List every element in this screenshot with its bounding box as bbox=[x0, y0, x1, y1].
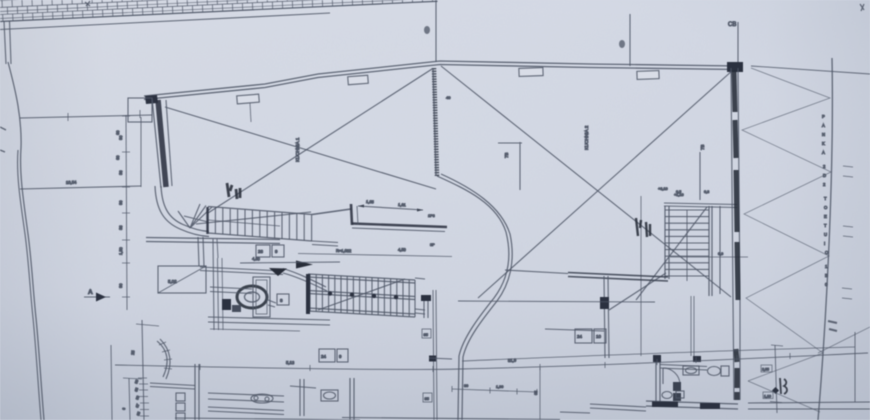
svg-text:KUCHNIA 1: KUCHNIA 1 bbox=[295, 137, 300, 162]
svg-text:6: 6 bbox=[122, 408, 126, 410]
svg-text:E: E bbox=[824, 214, 827, 219]
svg-text:1,50: 1,50 bbox=[118, 246, 123, 255]
svg-text:T: T bbox=[824, 196, 827, 201]
svg-text:40: 40 bbox=[446, 95, 451, 100]
svg-text:10: 10 bbox=[596, 334, 601, 339]
svg-text:0,9: 0,9 bbox=[718, 252, 723, 256]
svg-text:A: A bbox=[822, 123, 825, 128]
svg-text:4,50: 4,50 bbox=[398, 247, 407, 252]
svg-text:8: 8 bbox=[280, 298, 283, 303]
svg-text:1P3: 1P3 bbox=[428, 214, 435, 218]
svg-text:I: I bbox=[824, 241, 825, 246]
svg-text:R=1,052: R=1,052 bbox=[336, 248, 352, 253]
svg-text:+3,10: +3,10 bbox=[658, 187, 668, 191]
svg-text:85: 85 bbox=[424, 332, 429, 337]
svg-text:K: K bbox=[822, 141, 825, 146]
svg-text:1,10: 1,10 bbox=[764, 395, 771, 399]
svg-text:1,61: 1,61 bbox=[398, 202, 407, 207]
svg-text:7B: 7B bbox=[504, 153, 509, 158]
svg-text:T: T bbox=[824, 223, 827, 228]
svg-text:7B: 7B bbox=[700, 145, 705, 150]
svg-text:A: A bbox=[88, 289, 93, 296]
svg-text:N: N bbox=[822, 132, 825, 137]
svg-text:5,13: 5,13 bbox=[286, 360, 295, 365]
svg-text:CB: CB bbox=[728, 22, 736, 28]
svg-text:10,54: 10,54 bbox=[66, 180, 77, 185]
svg-text:05: 05 bbox=[534, 391, 538, 395]
svg-text:B: B bbox=[825, 273, 828, 278]
svg-text:26: 26 bbox=[258, 249, 263, 254]
svg-text:80: 80 bbox=[464, 384, 468, 388]
svg-text:5,02: 5,02 bbox=[168, 279, 177, 284]
svg-text:1,90: 1,90 bbox=[496, 385, 503, 389]
svg-text:KUCHNIA 2: KUCHNIA 2 bbox=[584, 125, 589, 150]
svg-text:A: A bbox=[822, 150, 825, 155]
svg-text:1,05: 1,05 bbox=[366, 199, 375, 204]
svg-text:3P: 3P bbox=[430, 243, 435, 247]
svg-text:24: 24 bbox=[577, 334, 582, 339]
svg-text:85: 85 bbox=[425, 396, 430, 401]
svg-text:P: P bbox=[822, 114, 825, 119]
svg-text:2,85: 2,85 bbox=[762, 368, 769, 372]
svg-text:51,9: 51,9 bbox=[508, 358, 517, 363]
svg-text:0,8: 0,8 bbox=[704, 190, 709, 194]
svg-text:24: 24 bbox=[321, 354, 326, 359]
svg-text:U: U bbox=[824, 232, 827, 237]
svg-text:0,5: 0,5 bbox=[676, 190, 681, 194]
